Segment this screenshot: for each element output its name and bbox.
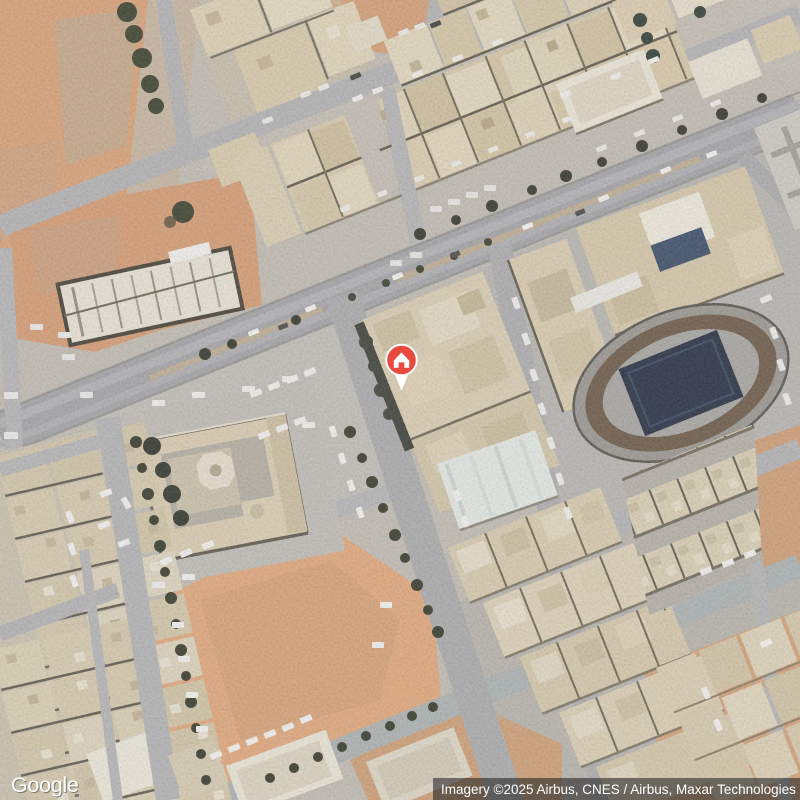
svg-text:Imagery ©2025 Airbus, CNES / A: Imagery ©2025 Airbus, CNES / Airbus, Max… xyxy=(441,782,796,797)
svg-text:Google: Google xyxy=(11,773,79,797)
